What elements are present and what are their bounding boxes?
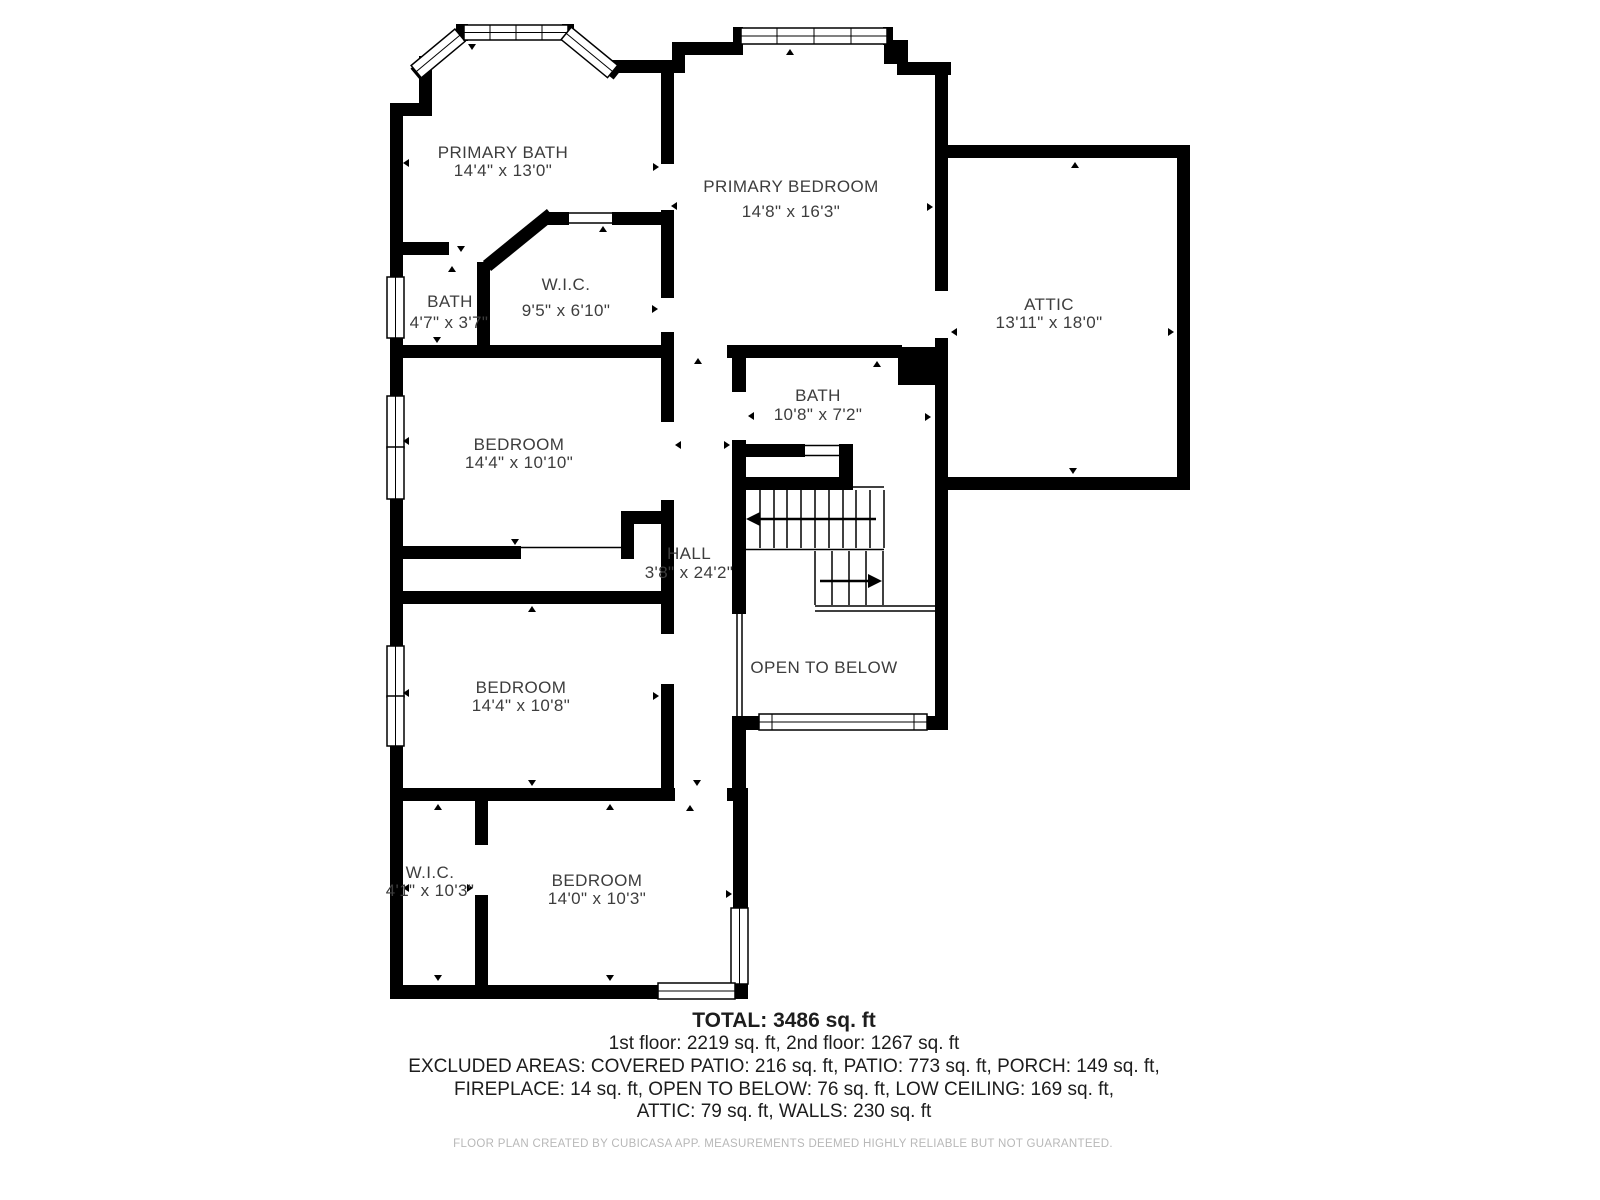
bath-small-window xyxy=(387,277,404,338)
room-dims-hall: 3'8" x 24'2" xyxy=(645,563,734,582)
room-dims-bedroom-2: 14'4" x 10'8" xyxy=(472,696,570,715)
room-label-open-to-below: OPEN TO BELOW xyxy=(750,658,897,677)
open-to-below-window xyxy=(759,714,927,730)
room-dims-attic: 13'11" x 18'0" xyxy=(995,313,1102,332)
floor-areas-text: 1st floor: 2219 sq. ft, 2nd floor: 1267 … xyxy=(609,1033,960,1054)
room-label-hall: HALL xyxy=(667,544,711,563)
floor-plan-page: PRIMARY BATH 14'4" x 13'0" PRIMARY BEDRO… xyxy=(0,0,1600,1200)
bay-window-left xyxy=(411,29,465,78)
room-dims-primary-bedroom: 14'8" x 16'3" xyxy=(742,202,840,221)
bedroom-2-windows xyxy=(387,646,404,746)
bay-window-top xyxy=(464,25,568,40)
total-area-text: TOTAL: 3486 sq. ft xyxy=(692,1009,876,1032)
area-summary: TOTAL: 3486 sq. ft 1st floor: 2219 sq. f… xyxy=(408,1009,1159,1150)
room-dims-primary-bath: 14'4" x 13'0" xyxy=(454,161,552,180)
bay-window-right xyxy=(561,27,618,77)
excluded-areas-line1: EXCLUDED AREAS: COVERED PATIO: 216 sq. f… xyxy=(408,1056,1159,1077)
room-label-primary-bedroom: PRIMARY BEDROOM xyxy=(703,177,878,196)
excluded-areas-line2: FIREPLACE: 14 sq. ft, OPEN TO BELOW: 76 … xyxy=(454,1079,1114,1100)
room-label-attic: ATTIC xyxy=(1024,295,1074,314)
bedroom-3-right-window xyxy=(731,908,748,984)
bedroom-1-windows xyxy=(387,396,404,499)
room-dims-wic-2: 4'1" x 10'3" xyxy=(386,881,475,900)
excluded-areas-line3: ATTIC: 79 sq. ft, WALLS: 230 sq. ft xyxy=(637,1101,932,1122)
room-label-bedroom-3: BEDROOM xyxy=(552,871,643,890)
bedroom-3-bottom-window xyxy=(658,983,735,999)
primary-bedroom-window xyxy=(741,28,887,44)
room-dims-bedroom-1: 14'4" x 10'10" xyxy=(465,453,573,472)
room-dims-bedroom-3: 14'0" x 10'3" xyxy=(548,889,646,908)
room-label-bath-mid: BATH xyxy=(795,386,841,405)
room-label-bedroom-1: BEDROOM xyxy=(474,435,565,454)
room-dims-bath-mid: 10'8" x 7'2" xyxy=(774,405,863,424)
room-label-bedroom-2: BEDROOM xyxy=(476,678,567,697)
room-label-bath-small: BATH xyxy=(427,292,473,311)
disclaimer-text: FLOOR PLAN CREATED BY CUBICASA APP. MEAS… xyxy=(453,1138,1113,1150)
room-label-primary-bath: PRIMARY BATH xyxy=(438,143,568,162)
room-label-wic-2: W.I.C. xyxy=(406,863,455,882)
room-label-wic-primary: W.I.C. xyxy=(542,275,591,294)
room-dims-bath-small: 4'7" x 3'7" xyxy=(410,313,489,332)
room-dims-wic-primary: 9'5" x 6'10" xyxy=(522,301,611,320)
floorplan-svg: PRIMARY BATH 14'4" x 13'0" PRIMARY BEDRO… xyxy=(0,0,1600,1200)
stairs xyxy=(737,487,935,716)
